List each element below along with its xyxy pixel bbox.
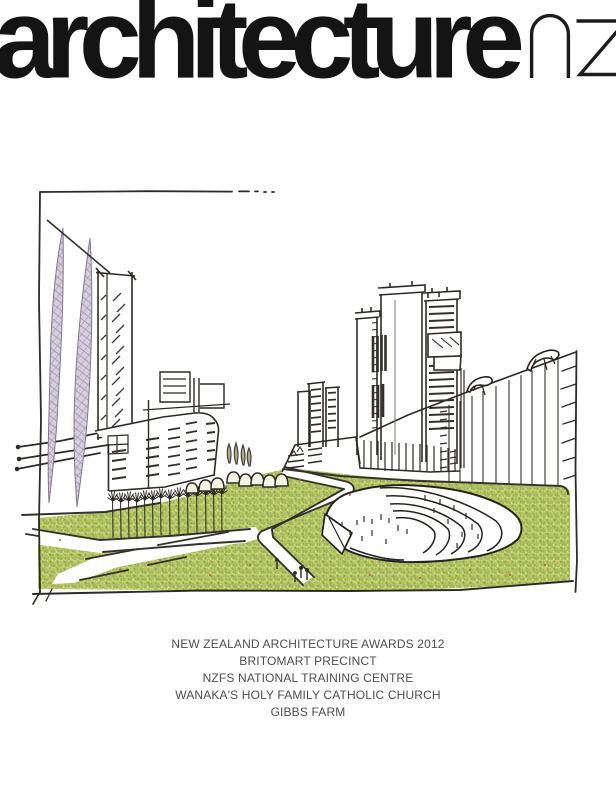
svg-text:architecture: architecture [0, 0, 525, 102]
